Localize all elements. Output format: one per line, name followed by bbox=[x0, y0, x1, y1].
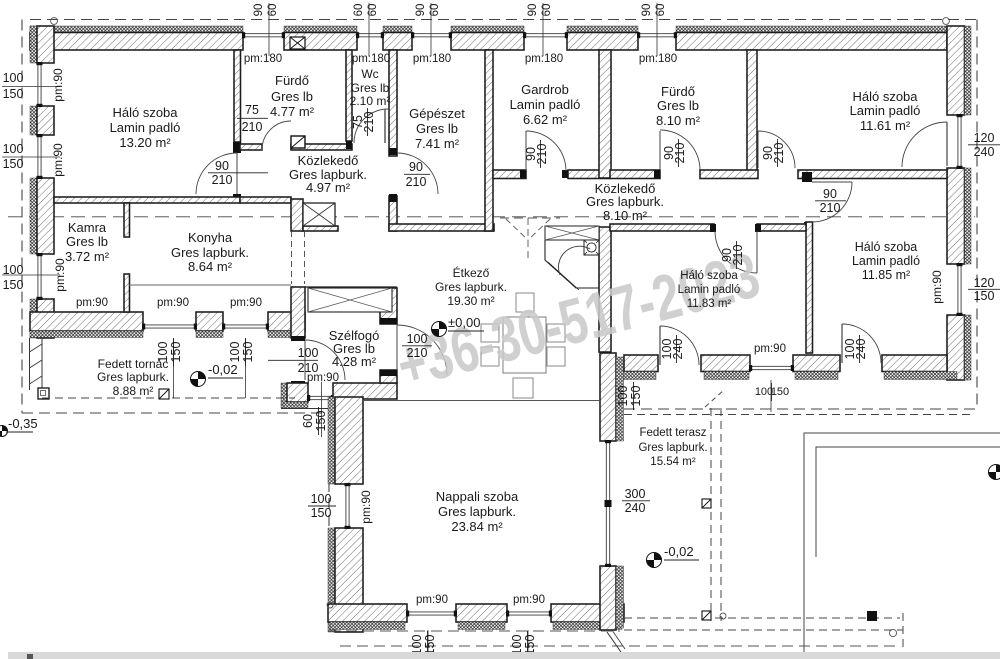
svg-text:150: 150 bbox=[3, 157, 24, 171]
svg-text:19.30 m²: 19.30 m² bbox=[447, 294, 494, 308]
svg-text:60: 60 bbox=[267, 4, 279, 17]
svg-text:11.61 m²: 11.61 m² bbox=[860, 118, 911, 133]
svg-text:pm:90: pm:90 bbox=[416, 594, 448, 606]
svg-text:100: 100 bbox=[3, 142, 24, 156]
svg-text:210: 210 bbox=[820, 201, 841, 215]
svg-text:Háló szoba: Háló szoba bbox=[852, 89, 918, 104]
svg-text:11.85 m²: 11.85 m² bbox=[862, 268, 910, 282]
svg-text:Gres lapburk.: Gres lapburk. bbox=[586, 194, 664, 209]
svg-text:±0,00: ±0,00 bbox=[448, 315, 480, 330]
svg-text:240: 240 bbox=[671, 339, 685, 360]
svg-text:Gres lapburk.: Gres lapburk. bbox=[171, 245, 249, 260]
svg-text:pm:180: pm:180 bbox=[413, 53, 451, 65]
svg-text:150: 150 bbox=[311, 506, 332, 520]
svg-text:100: 100 bbox=[3, 71, 24, 85]
svg-text:210: 210 bbox=[731, 245, 745, 266]
svg-text:Kamra: Kamra bbox=[68, 220, 107, 235]
svg-text:100: 100 bbox=[3, 263, 24, 277]
svg-text:90: 90 bbox=[215, 159, 229, 173]
svg-text:240: 240 bbox=[625, 501, 646, 515]
svg-text:120: 120 bbox=[974, 276, 995, 290]
svg-text:Lamin padló: Lamin padló bbox=[852, 254, 920, 268]
svg-text:Gres lapburk.: Gres lapburk. bbox=[638, 442, 707, 454]
svg-text:90: 90 bbox=[253, 4, 265, 17]
svg-text:8.64 m²: 8.64 m² bbox=[188, 259, 233, 274]
svg-text:pm:90: pm:90 bbox=[359, 490, 373, 524]
svg-text:pm:180: pm:180 bbox=[639, 53, 677, 65]
svg-text:Gres lapburk.: Gres lapburk. bbox=[435, 280, 507, 294]
svg-text:Lamin padló: Lamin padló bbox=[110, 120, 181, 135]
svg-text:100: 100 bbox=[407, 332, 428, 346]
svg-text:Gres lb: Gres lb bbox=[351, 81, 390, 95]
svg-text:90: 90 bbox=[415, 4, 427, 17]
svg-text:pm:90: pm:90 bbox=[51, 68, 65, 102]
svg-text:2.10 m²: 2.10 m² bbox=[350, 94, 391, 108]
svg-text:150: 150 bbox=[3, 278, 24, 292]
svg-text:210: 210 bbox=[772, 143, 786, 164]
svg-text:Közlekedő: Közlekedő bbox=[298, 153, 359, 168]
svg-text:Gres lapburk.: Gres lapburk. bbox=[97, 370, 169, 384]
svg-text:210: 210 bbox=[362, 112, 376, 133]
svg-text:210: 210 bbox=[242, 120, 263, 134]
svg-text:120: 120 bbox=[974, 131, 995, 145]
svg-text:pm:90: pm:90 bbox=[51, 143, 65, 177]
svg-text:60: 60 bbox=[541, 4, 553, 17]
svg-text:60: 60 bbox=[429, 4, 441, 17]
svg-text:pm:90: pm:90 bbox=[53, 258, 67, 292]
svg-text:8.10 m²: 8.10 m² bbox=[603, 208, 648, 223]
svg-text:90: 90 bbox=[527, 4, 539, 17]
svg-text:60: 60 bbox=[353, 4, 365, 17]
svg-text:pm:180: pm:180 bbox=[352, 53, 390, 65]
svg-text:pm:90: pm:90 bbox=[513, 594, 545, 606]
svg-text:Gres lb: Gres lb bbox=[416, 121, 458, 136]
svg-text:Háló szoba: Háló szoba bbox=[680, 270, 738, 282]
svg-text:60: 60 bbox=[301, 414, 315, 428]
svg-text:13.20 m²: 13.20 m² bbox=[119, 135, 171, 150]
svg-text:Lamin padló: Lamin padló bbox=[510, 97, 581, 112]
svg-text:Lamin padló: Lamin padló bbox=[850, 103, 921, 118]
svg-text:75: 75 bbox=[245, 103, 259, 117]
svg-text:210: 210 bbox=[535, 144, 549, 165]
svg-text:150: 150 bbox=[241, 342, 255, 363]
svg-text:pm:90: pm:90 bbox=[754, 343, 786, 355]
svg-text:4.77 m²: 4.77 m² bbox=[270, 104, 315, 119]
svg-text:15.54 m²: 15.54 m² bbox=[650, 456, 696, 468]
svg-text:Gres lb: Gres lb bbox=[66, 234, 108, 249]
svg-text:23.84 m²: 23.84 m² bbox=[451, 519, 503, 534]
svg-text:Háló szoba: Háló szoba bbox=[112, 105, 178, 120]
svg-text:150: 150 bbox=[169, 342, 183, 363]
svg-text:Gres lb: Gres lb bbox=[657, 98, 699, 113]
svg-text:150: 150 bbox=[974, 289, 995, 303]
svg-text:-0,02: -0,02 bbox=[208, 362, 238, 377]
svg-text:8.10 m²: 8.10 m² bbox=[656, 113, 701, 128]
svg-text:100: 100 bbox=[156, 342, 170, 363]
svg-text:pm:180: pm:180 bbox=[525, 53, 563, 65]
svg-text:210: 210 bbox=[406, 175, 427, 189]
svg-text:Háló szoba: Háló szoba bbox=[855, 240, 918, 254]
svg-text:90: 90 bbox=[823, 187, 837, 201]
svg-text:pm:90: pm:90 bbox=[76, 297, 108, 309]
svg-text:210: 210 bbox=[212, 173, 233, 187]
svg-text:-0,35: -0,35 bbox=[8, 416, 38, 431]
svg-text:150: 150 bbox=[314, 411, 328, 432]
svg-text:90: 90 bbox=[641, 4, 653, 17]
svg-text:Nappali szoba: Nappali szoba bbox=[436, 489, 519, 504]
svg-text:pm:90: pm:90 bbox=[307, 372, 339, 384]
svg-text:8.88 m²: 8.88 m² bbox=[113, 384, 154, 398]
svg-text:100: 100 bbox=[311, 492, 332, 506]
svg-text:pm:90: pm:90 bbox=[157, 297, 189, 309]
svg-text:4.28 m²: 4.28 m² bbox=[332, 354, 377, 369]
svg-text:Lamin padló: Lamin padló bbox=[678, 284, 741, 296]
svg-text:Gres lapburk.: Gres lapburk. bbox=[438, 504, 516, 519]
svg-text:210: 210 bbox=[673, 143, 687, 164]
svg-text:150: 150 bbox=[3, 87, 24, 101]
svg-text:150: 150 bbox=[771, 386, 789, 398]
svg-text:pm:90: pm:90 bbox=[930, 270, 944, 304]
svg-text:4.97 m²: 4.97 m² bbox=[306, 180, 351, 195]
svg-text:6.62 m²: 6.62 m² bbox=[523, 112, 568, 127]
svg-text:210: 210 bbox=[407, 346, 428, 360]
svg-text:pm:180: pm:180 bbox=[244, 53, 282, 65]
svg-text:60: 60 bbox=[367, 4, 379, 17]
svg-text:100: 100 bbox=[298, 346, 319, 360]
svg-text:Gres lb: Gres lb bbox=[271, 89, 313, 104]
svg-text:Fürdő: Fürdő bbox=[275, 73, 309, 88]
svg-text:Gépészet: Gépészet bbox=[409, 106, 465, 121]
svg-text:Étkező: Étkező bbox=[453, 265, 490, 280]
svg-text:100: 100 bbox=[616, 386, 630, 407]
svg-text:150: 150 bbox=[629, 386, 643, 407]
svg-text:Fedett terasz: Fedett terasz bbox=[639, 427, 706, 439]
svg-text:Gardrob: Gardrob bbox=[521, 82, 569, 97]
svg-text:240: 240 bbox=[854, 339, 868, 360]
svg-text:11.83 m²: 11.83 m² bbox=[687, 298, 732, 310]
svg-text:Konyha: Konyha bbox=[188, 230, 233, 245]
svg-text:3.72 m²: 3.72 m² bbox=[65, 249, 110, 264]
svg-text:pm:90: pm:90 bbox=[230, 297, 262, 309]
svg-text:7.41 m²: 7.41 m² bbox=[415, 136, 460, 151]
svg-text:240: 240 bbox=[974, 145, 995, 159]
svg-text:300: 300 bbox=[625, 487, 646, 501]
svg-text:Fürdő: Fürdő bbox=[661, 84, 695, 99]
svg-text:-0,02: -0,02 bbox=[664, 544, 694, 559]
svg-text:60: 60 bbox=[655, 4, 667, 17]
svg-text:90: 90 bbox=[409, 160, 423, 174]
svg-text:Wc: Wc bbox=[361, 67, 378, 81]
svg-text:100: 100 bbox=[228, 342, 242, 363]
